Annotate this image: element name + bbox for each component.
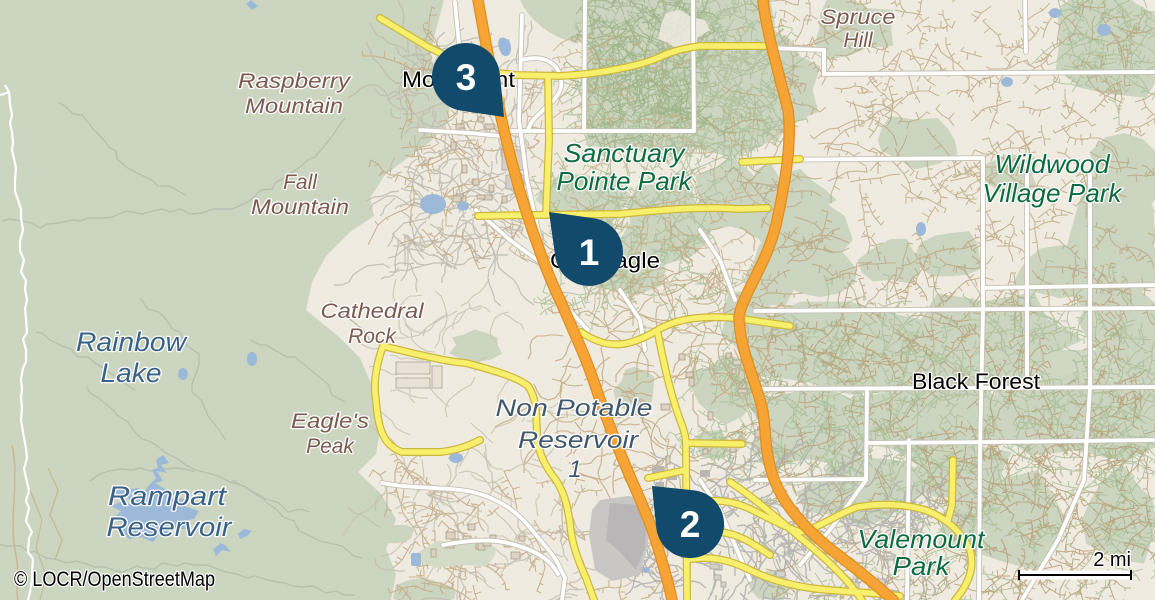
svg-text:Mountain: Mountain (251, 196, 349, 219)
svg-text:© LOCR/OpenStreetMap: © LOCR/OpenStreetMap (14, 568, 215, 591)
svg-text:Fall: Fall (283, 171, 318, 194)
svg-text:Rampart: Rampart (108, 481, 228, 511)
svg-text:Non Potable: Non Potable (496, 395, 653, 422)
svg-text:Peak: Peak (306, 435, 355, 458)
svg-text:Village Park: Village Park (983, 178, 1124, 208)
svg-text:Reservoir: Reservoir (107, 512, 233, 542)
svg-text:2: 2 (680, 504, 701, 545)
svg-text:Sanctuary: Sanctuary (564, 138, 687, 168)
svg-text:Hill: Hill (843, 29, 873, 52)
svg-text:Rock: Rock (348, 325, 397, 348)
svg-text:Lake: Lake (101, 358, 162, 388)
svg-text:2 mi: 2 mi (1093, 549, 1131, 571)
svg-text:1: 1 (568, 456, 581, 483)
svg-text:Raspberry: Raspberry (238, 70, 352, 93)
svg-text:Park: Park (893, 551, 952, 581)
svg-text:3: 3 (456, 57, 477, 98)
svg-text:Reservoir: Reservoir (518, 427, 639, 454)
svg-text:Valemount: Valemount (858, 524, 987, 554)
svg-text:Cathedral: Cathedral (321, 300, 426, 323)
svg-text:Mountain: Mountain (245, 95, 343, 118)
svg-text:1: 1 (579, 232, 600, 273)
svg-text:Rainbow: Rainbow (76, 327, 188, 357)
svg-text:Wildwood: Wildwood (995, 149, 1112, 179)
svg-text:Spruce: Spruce (821, 6, 896, 29)
svg-text:Eagle's: Eagle's (291, 410, 370, 433)
svg-text:Pointe Park: Pointe Park (557, 166, 694, 196)
svg-text:Black Forest: Black Forest (912, 369, 1040, 394)
